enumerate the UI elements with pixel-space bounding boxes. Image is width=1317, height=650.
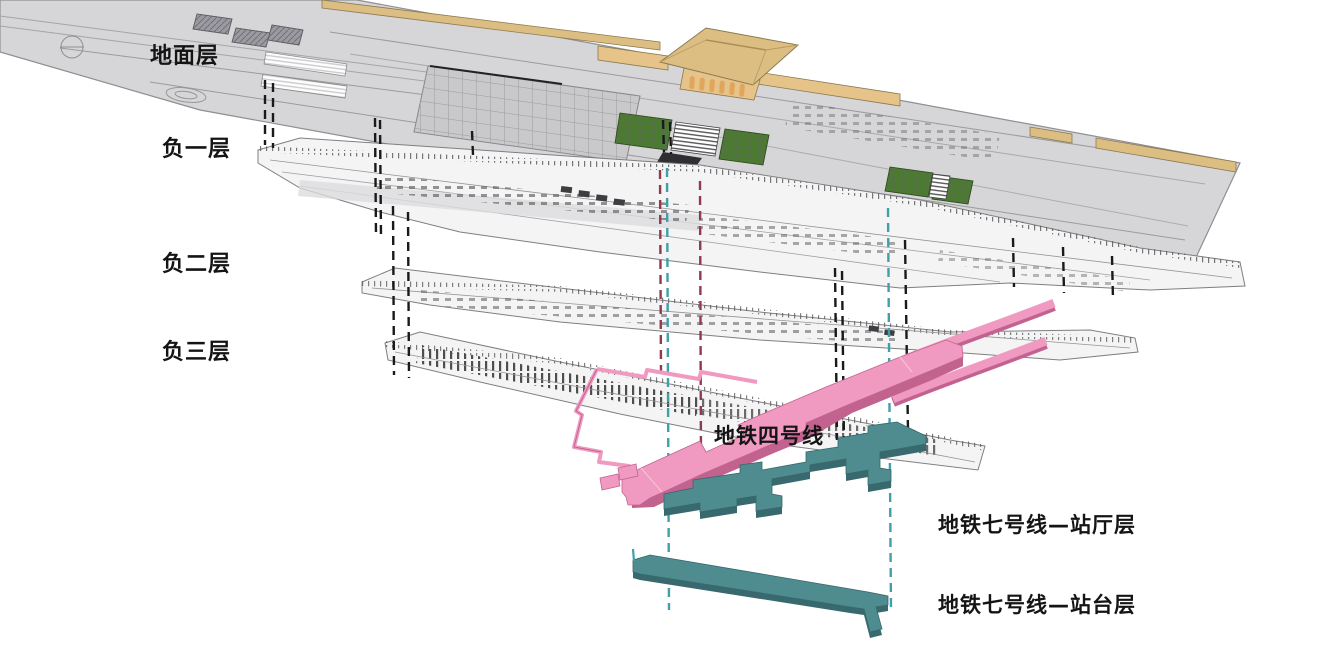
label-line7-concourse: 地铁七号线—站厅层 <box>938 513 1136 538</box>
label-b1-level: 负一层 <box>162 137 231 163</box>
label-b2-level: 负二层 <box>162 252 231 278</box>
exploded-axonometric-diagram: 地面层 负一层 负二层 负三层 地铁四号线 地铁七号线—站厅层 地铁七号线—站台… <box>0 0 1317 650</box>
label-ground-level: 地面层 <box>150 44 219 70</box>
line7-platform-slab <box>633 549 888 638</box>
label-b3-level: 负三层 <box>162 340 231 366</box>
label-line7-platform: 地铁七号线—站台层 <box>938 593 1136 618</box>
label-line4: 地铁四号线 <box>714 424 824 449</box>
diagram-artwork <box>0 0 1317 650</box>
